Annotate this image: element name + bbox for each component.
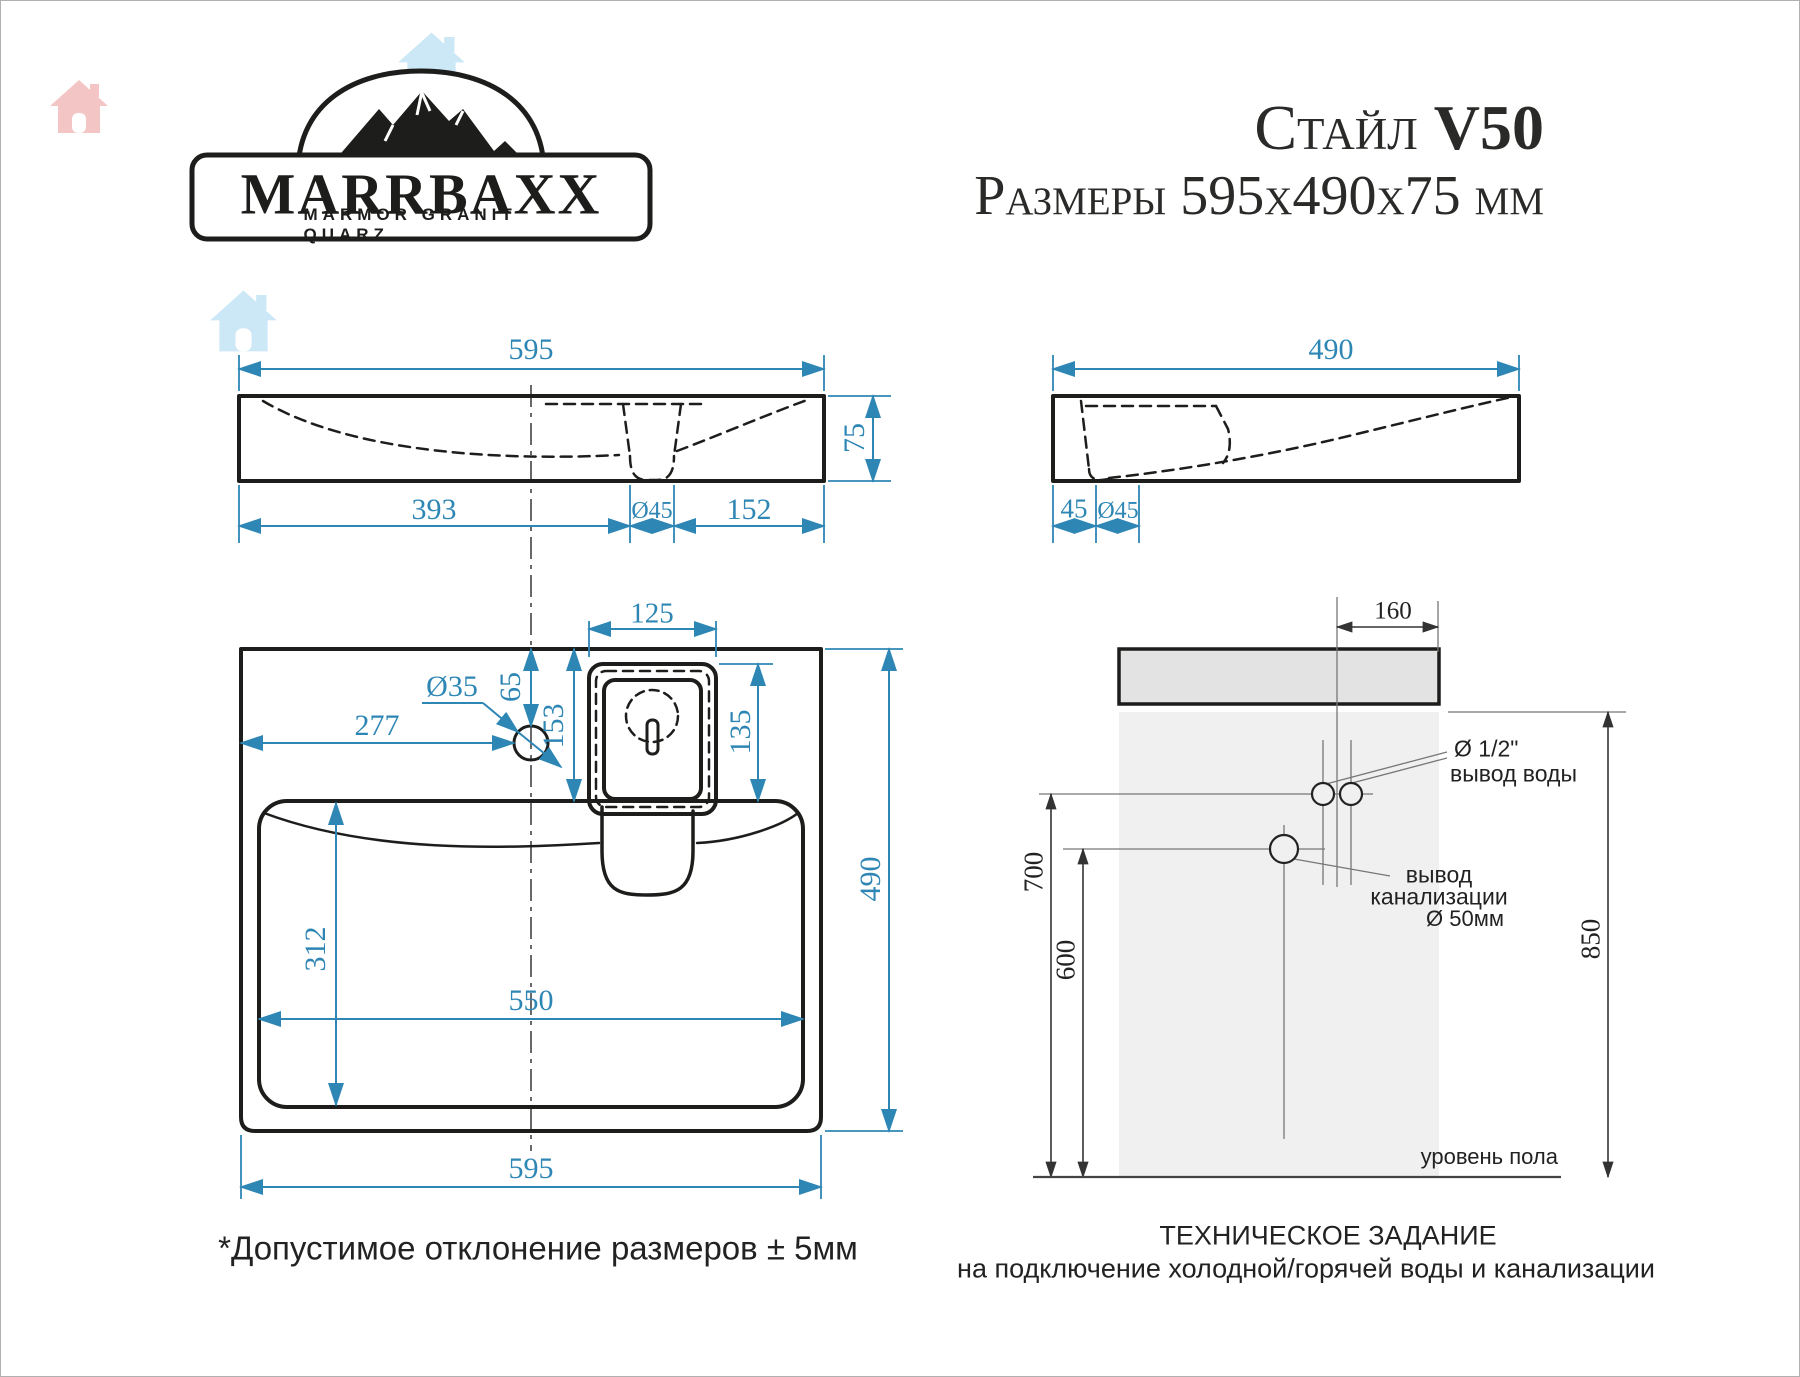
bowl-width-dim: 550 — [509, 986, 554, 1016]
model-code: V50 — [1434, 92, 1544, 163]
product-title: СтайлV50 Размеры 595x490x75 мм — [974, 93, 1544, 231]
overflow-width-dim: 125 — [630, 600, 674, 629]
front-height-dim: 75 — [840, 423, 870, 453]
front-left-dim: 393 — [412, 495, 457, 525]
install-faucet-offset-dim: 160 — [1374, 599, 1412, 624]
install-drain-height-dim: 600 — [1053, 940, 1080, 981]
drain-outlet — [1270, 835, 1298, 863]
overall-dimensions: Размеры 595x490x75 мм — [974, 163, 1544, 230]
front-width-dim: 595 — [509, 335, 554, 365]
bowl-front-depth-dim: 312 — [301, 927, 331, 972]
brand-tagline: MARMOR GRANIT QUARZ — [304, 205, 539, 245]
spec-sheet-page: MARRBAXX MARMOR GRANIT QUARZ СтайлV50 Ра… — [0, 0, 1800, 1377]
floor-level-label: уровень пола — [1421, 1146, 1558, 1168]
install-water-height-dim: 700 — [1021, 852, 1048, 893]
overflow-height-dim: 135 — [726, 710, 756, 755]
front-drain-dia-dim: Ø45 — [631, 499, 672, 523]
overflow-offset-dim: 153 — [539, 704, 569, 749]
install-top-height-dim: 850 — [1578, 919, 1605, 960]
water-outlet-left — [1312, 783, 1334, 805]
faucet-dia-dim: Ø35 — [426, 672, 478, 702]
water-dia-label: Ø 1/2" — [1454, 738, 1518, 761]
water-outlet-label: вывод воды — [1450, 763, 1577, 786]
side-depth-dim: 490 — [1309, 335, 1354, 365]
brand-logo: MARRBAXX MARMOR GRANIT QUARZ — [186, 59, 656, 244]
front-view-dimensions — [239, 355, 891, 543]
faucet-from-left-dim: 277 — [355, 711, 400, 741]
model-name: Стайл — [1254, 92, 1417, 163]
technical-task-heading: ТЕХНИЧЕСКОЕ ЗАДАНИЕ — [1159, 1223, 1496, 1250]
tolerance-note: *Допустимое отклонение размеров ± 5мм — [218, 1232, 858, 1265]
side-view-drawing — [1053, 396, 1519, 481]
sink-silhouette — [1119, 649, 1439, 704]
technical-task-subheading: на подключение холодной/горячей воды и к… — [957, 1256, 1655, 1283]
side-front-offset-dim: 45 — [1061, 496, 1088, 523]
installation-diagram — [1033, 597, 1626, 1177]
faucet-offset-dim: 65 — [496, 672, 526, 702]
side-drain-dia-dim: Ø45 — [1097, 499, 1138, 523]
plan-total-width-dim: 595 — [509, 1154, 554, 1184]
drain-dia-label: Ø 50мм — [1426, 908, 1504, 930]
wall-area — [1119, 712, 1439, 1177]
front-right-dim: 152 — [727, 495, 772, 525]
water-outlet-right — [1340, 783, 1362, 805]
plan-total-depth-dim: 490 — [856, 857, 886, 902]
